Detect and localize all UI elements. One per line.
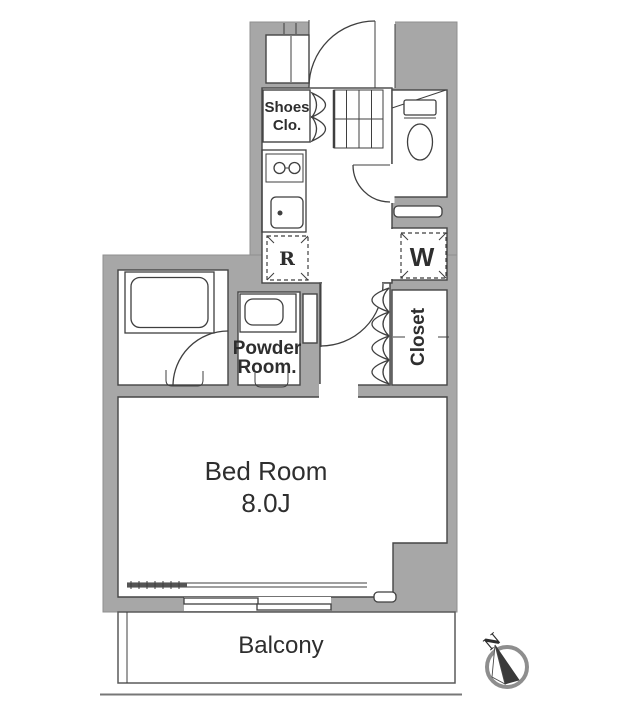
- sliding-door-pane-right: [257, 604, 331, 610]
- bedroom-hall-opening: [319, 384, 358, 399]
- washer-alcove-opening: [391, 229, 395, 279]
- balcony-label: Balcony: [238, 632, 323, 659]
- toilet-bowl: [408, 124, 433, 160]
- washer-mark: W: [410, 242, 435, 272]
- shoes-closet-label-line2: Clo.: [273, 117, 301, 134]
- refrigerator-mark: R: [279, 248, 295, 270]
- wall-sleeve-vent: [374, 592, 396, 602]
- bedroom-label: Bed Room: [205, 456, 328, 486]
- corridor-door-opening: [322, 282, 382, 287]
- meter-box: [266, 35, 309, 83]
- compass: N: [480, 630, 527, 687]
- wall-niche-shelf: [394, 206, 442, 217]
- shoes-closet-label-line1: Shoes: [264, 99, 309, 116]
- closet-label: Closet: [408, 307, 429, 366]
- toilet-tank: [404, 100, 436, 115]
- toilet-door-opening: [391, 164, 395, 203]
- sliding-door-pane-left: [184, 598, 258, 604]
- powder-room-label-line2: Room.: [237, 357, 296, 378]
- powder-room-label-line1: Powder: [233, 338, 302, 359]
- floorplan-drawing: N Shoes Clo. R W Powder Room. Closet Bed…: [0, 0, 639, 702]
- floorplan-page: N Shoes Clo. R W Powder Room. Closet Bed…: [0, 0, 639, 702]
- shoes-closet: [263, 90, 310, 142]
- pipe-pocket: [303, 294, 317, 343]
- entrance-porch: [309, 18, 395, 88]
- bedroom-size-label: 8.0J: [241, 488, 290, 518]
- sink-faucet-dot: [278, 211, 283, 216]
